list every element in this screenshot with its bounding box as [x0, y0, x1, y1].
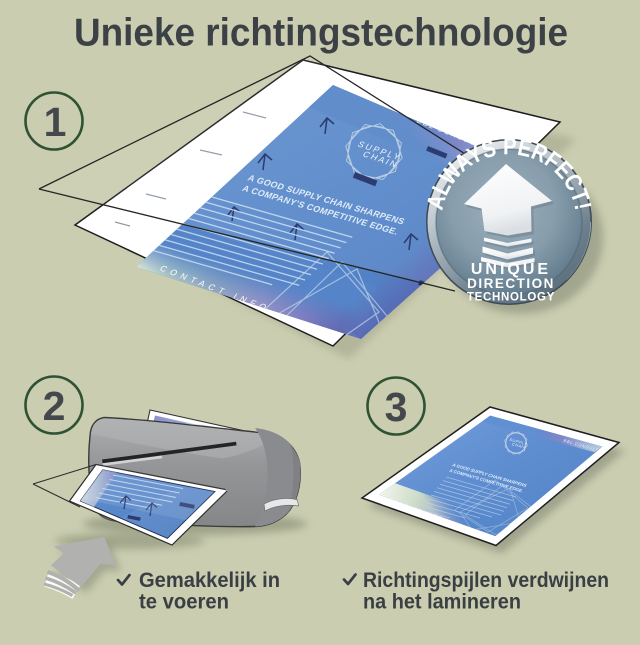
svg-text:3: 3 — [385, 384, 408, 430]
svg-text:1: 1 — [44, 99, 67, 145]
svg-text:TECHNOLOGY: TECHNOLOGY — [467, 292, 555, 304]
svg-text:Richtingspijlen verdwijnen: Richtingspijlen verdwijnen — [363, 568, 609, 592]
svg-text:na het lamineren: na het lamineren — [363, 590, 521, 614]
svg-text:Gemakkelijk in: Gemakkelijk in — [139, 568, 280, 592]
svg-text:Unieke richtingstechnologie: Unieke richtingstechnologie — [74, 12, 568, 55]
svg-text:DIRECTION: DIRECTION — [467, 276, 555, 291]
svg-text:te voeren: te voeren — [139, 590, 229, 614]
svg-text:2: 2 — [43, 383, 66, 429]
